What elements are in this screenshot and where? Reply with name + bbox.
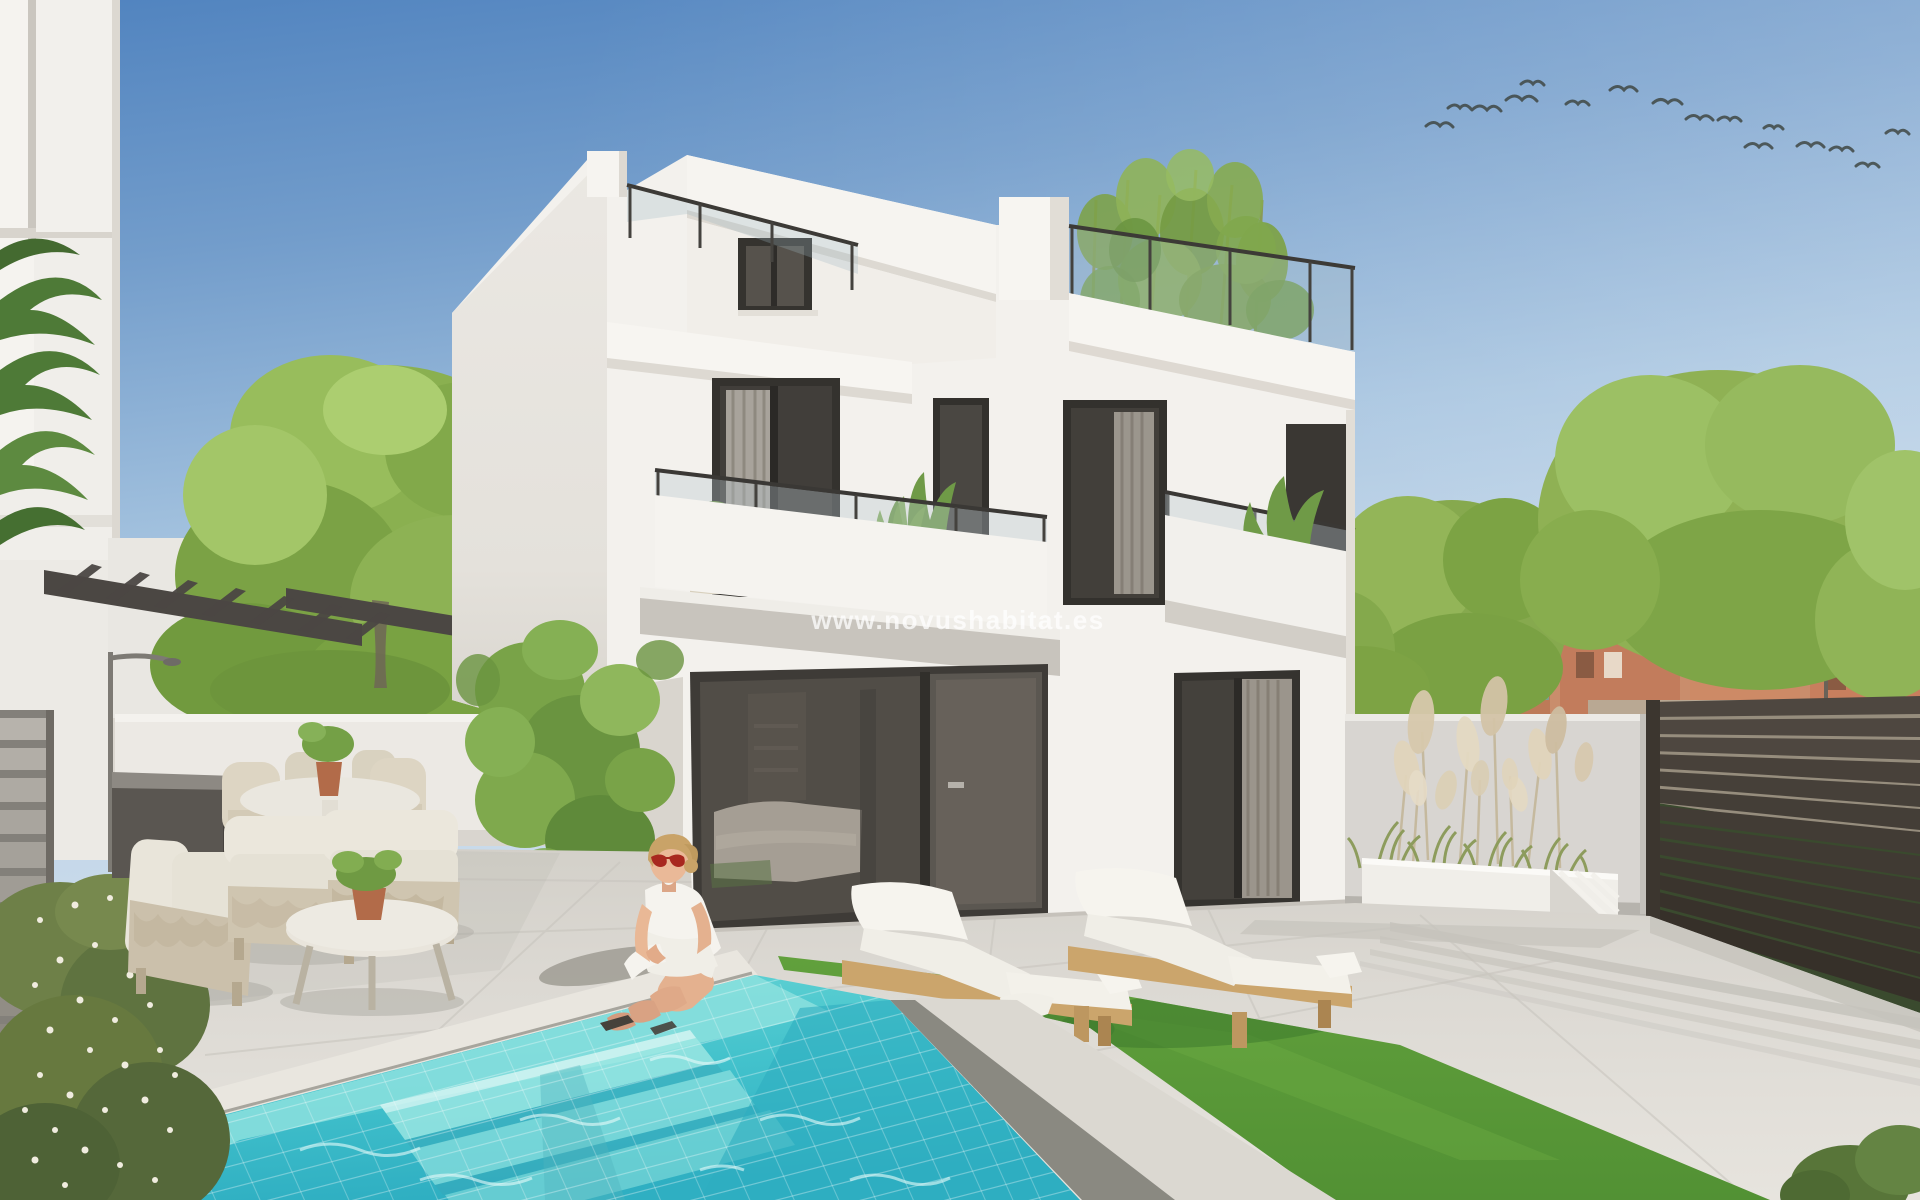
svg-text:www.novushabitat.es: www.novushabitat.es (810, 605, 1104, 635)
